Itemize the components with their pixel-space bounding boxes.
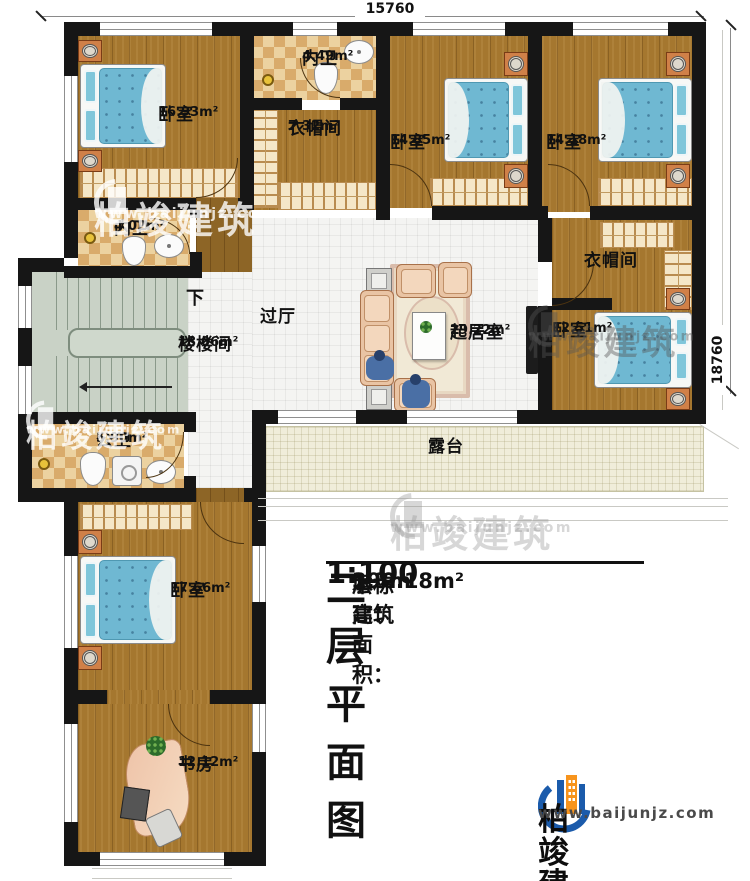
title-underline (326, 561, 644, 564)
shower-head (262, 74, 274, 86)
wall (240, 22, 254, 210)
wall (538, 306, 552, 412)
doorway-floor (196, 488, 244, 502)
dimension-right-value: 18760 (710, 325, 726, 395)
dimension-line-right (730, 28, 731, 394)
porch-outline (92, 868, 232, 869)
armchair (396, 264, 436, 298)
company-url: www.baijunjz.com (538, 804, 715, 822)
nightstand (504, 164, 528, 188)
window (18, 286, 32, 328)
pillow (84, 70, 97, 103)
floor-height-value: 3.3m (352, 569, 411, 593)
pillow (84, 562, 97, 597)
washing-machine (112, 456, 142, 486)
building-outline (699, 424, 739, 449)
wall (376, 22, 390, 220)
pillow (675, 123, 688, 156)
person-on-sofa (366, 356, 394, 380)
nightstand (78, 646, 102, 670)
window (413, 22, 505, 36)
shower-head (84, 232, 96, 244)
nightstand (666, 52, 690, 76)
loveseat (438, 262, 472, 298)
wall (538, 218, 552, 262)
terrace-railing (258, 506, 728, 507)
wall (184, 476, 196, 488)
wall (692, 22, 706, 424)
wall (590, 206, 692, 220)
nightstand (78, 40, 102, 62)
window (252, 546, 266, 602)
window (252, 704, 266, 752)
window (64, 724, 78, 822)
wall (210, 690, 266, 704)
pillow (675, 352, 688, 380)
shower-head (38, 458, 50, 470)
nightstand (78, 530, 102, 554)
wall (528, 22, 542, 220)
dimension-top-value: 15760 (355, 1, 425, 17)
dimension-tick (725, 19, 736, 30)
bed (444, 78, 528, 162)
wall (432, 206, 542, 220)
wall (238, 198, 254, 210)
bed (80, 64, 166, 148)
wardrobe (252, 110, 278, 208)
bed (80, 556, 176, 644)
nightstand (666, 164, 690, 188)
pillow (675, 318, 688, 346)
wall (184, 424, 196, 432)
wall (340, 98, 380, 110)
pillow (511, 84, 524, 117)
pillow (511, 123, 524, 156)
wardrobe (80, 504, 192, 530)
window (18, 366, 32, 414)
dimension-tick (725, 385, 736, 396)
pillow (84, 109, 97, 142)
computer-monitor (120, 786, 150, 821)
terrace-floor (258, 426, 704, 492)
pillow (84, 603, 97, 638)
window (64, 76, 78, 162)
tv (526, 306, 538, 374)
window (64, 556, 78, 648)
floor-plan: 卧室16.93m² 内卫4.49m² 衣帽间7.32m² 卧室14.85m² 卧… (0, 0, 750, 881)
wall (64, 198, 196, 210)
wall (18, 488, 196, 502)
sliding-door (278, 410, 356, 424)
side-table (366, 384, 392, 410)
wall (240, 98, 302, 110)
window (293, 22, 337, 36)
wall (252, 410, 266, 494)
terrace-railing (258, 520, 728, 521)
doorway-floor (107, 690, 210, 704)
terrace-railing (258, 498, 728, 499)
porch-outline (92, 878, 232, 879)
stair-direction-arrow (82, 386, 172, 388)
nightstand (78, 150, 102, 172)
window (100, 22, 212, 36)
stair-treads (56, 272, 188, 330)
pillow (675, 84, 688, 117)
window (573, 22, 668, 36)
wall (64, 266, 202, 278)
wardrobe (278, 182, 376, 210)
wall (356, 410, 407, 424)
person-on-chair (402, 380, 430, 408)
wall (190, 210, 202, 218)
window (100, 852, 224, 866)
wall (32, 412, 196, 424)
plant (146, 736, 166, 756)
bed (598, 78, 692, 162)
sliding-door (407, 410, 517, 424)
stair-down-label: 下 (186, 284, 204, 310)
wall (64, 690, 107, 704)
coffee-table (412, 312, 446, 360)
nightstand (666, 388, 690, 410)
stair-railing (68, 328, 186, 358)
nightstand (504, 52, 528, 76)
wall (517, 410, 706, 424)
watermark-logo-icon (390, 493, 436, 539)
wardrobe (600, 222, 674, 248)
wall (64, 210, 78, 258)
nightstand (666, 288, 690, 310)
